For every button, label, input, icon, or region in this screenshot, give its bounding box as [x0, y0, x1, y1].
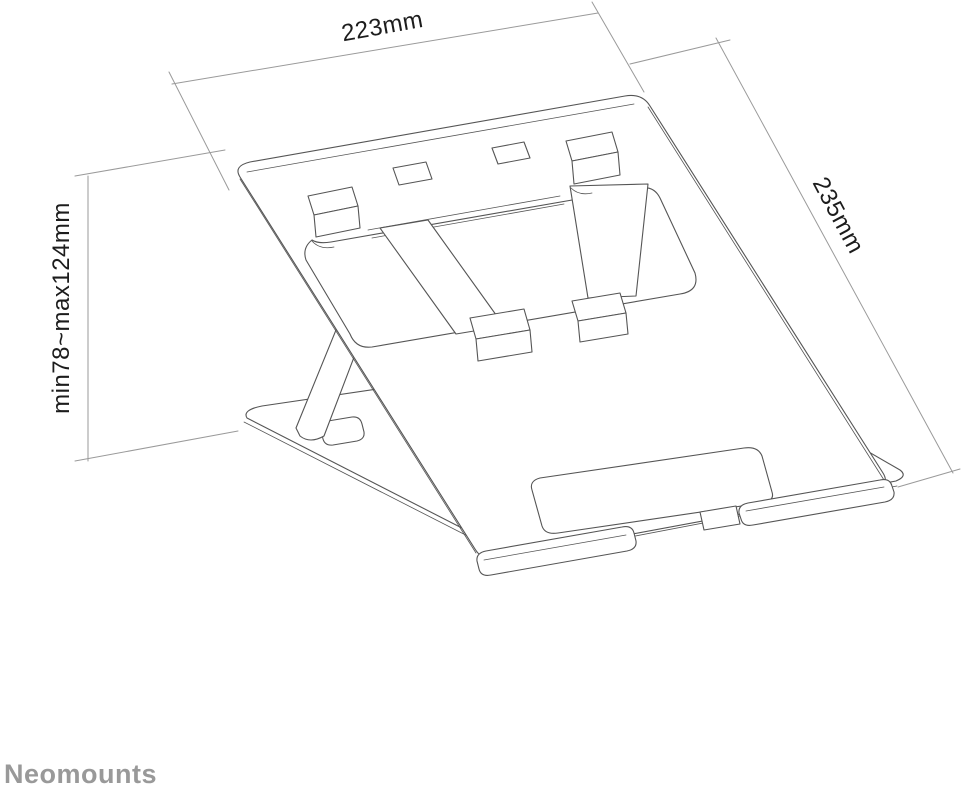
extension-line-right	[592, 2, 644, 92]
extension-line-bottom	[898, 469, 960, 487]
mid-hook-right	[572, 293, 628, 342]
brand-logo: Neomounts	[4, 759, 157, 787]
dimension-line-width-right-segment	[630, 40, 730, 64]
laptop-stand-technical-drawing: 223mm 235mm min78~max124mm Neomounts	[0, 0, 962, 787]
dimension-depth-label: 235mm	[807, 173, 870, 259]
extension-line-left	[169, 72, 229, 190]
dimension-height: min78~max124mm	[48, 150, 238, 461]
top-plate	[238, 95, 885, 559]
product-dimension-diagram: 223mm 235mm min78~max124mm Neomounts	[0, 0, 962, 787]
dimension-height-label: min78~max124mm	[48, 202, 75, 414]
dimension-width-label: 223mm	[339, 6, 425, 47]
mid-hook-left	[470, 309, 532, 361]
tick-bottom	[75, 431, 238, 461]
tick-top	[75, 150, 225, 176]
